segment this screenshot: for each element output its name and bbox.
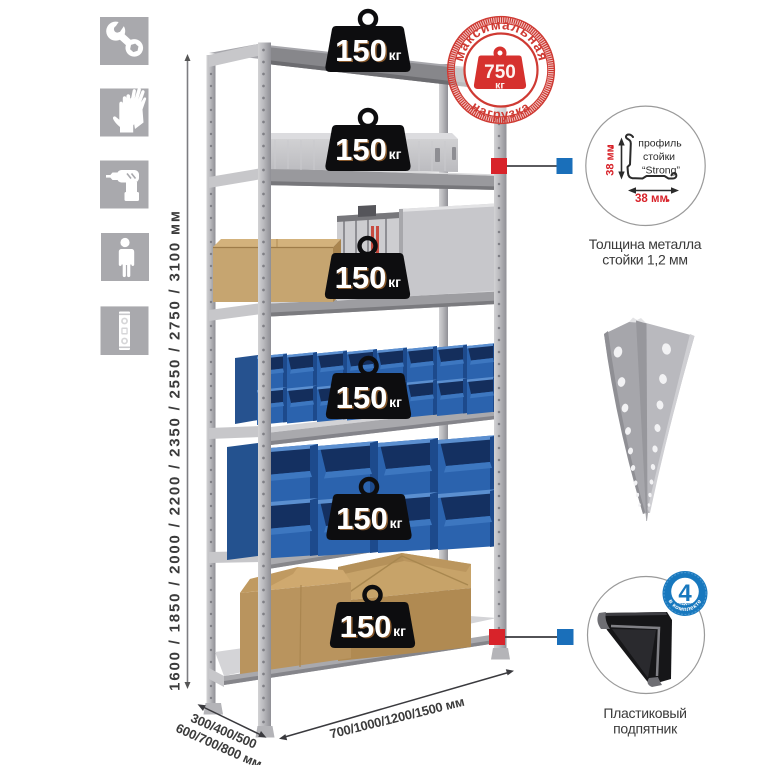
svg-text:“Strong”: “Strong” (642, 165, 680, 177)
svg-text:штуки: штуки (678, 602, 692, 607)
svg-text:стойки: стойки (643, 151, 675, 163)
svg-text:кг: кг (389, 146, 402, 162)
svg-text:38 мм: 38 мм (635, 193, 668, 205)
svg-text:150: 150 (340, 609, 392, 644)
svg-text:38 мм: 38 мм (605, 144, 617, 176)
svg-text:Толщина металла: Толщина металла (589, 236, 702, 252)
svg-text:150: 150 (335, 33, 387, 68)
svg-text:кг: кг (390, 515, 403, 531)
svg-text:150: 150 (336, 501, 388, 536)
svg-text:стойки 1,2 мм: стойки 1,2 мм (602, 252, 687, 268)
svg-text:кг: кг (389, 394, 402, 410)
svg-text:1600 / 1850 / 2000 / 2200 / 23: 1600 / 1850 / 2000 / 2200 / 2350 / 2550 … (167, 209, 184, 691)
svg-text:кг: кг (393, 623, 406, 639)
svg-text:150: 150 (335, 260, 387, 295)
svg-text:кг: кг (388, 274, 401, 290)
svg-text:150: 150 (335, 132, 387, 167)
svg-text:кг: кг (495, 80, 505, 92)
svg-text:Пластиковый: Пластиковый (603, 705, 686, 721)
svg-text:подпятник: подпятник (613, 721, 678, 737)
svg-text:кг: кг (389, 47, 402, 63)
svg-text:150: 150 (336, 380, 388, 415)
svg-text:профиль: профиль (638, 138, 682, 150)
